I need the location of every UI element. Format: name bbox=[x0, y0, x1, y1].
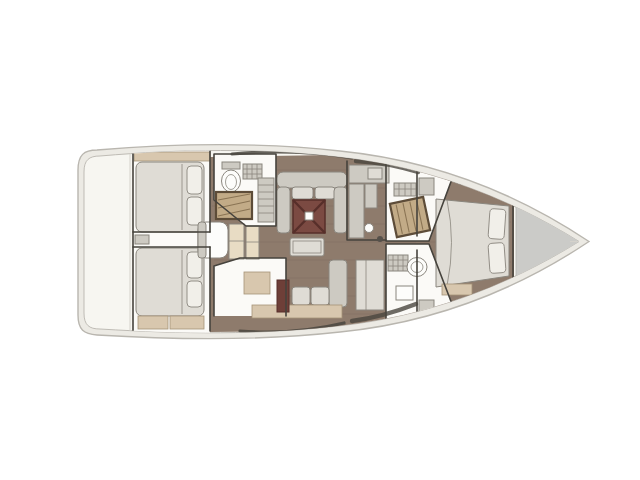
bench bbox=[138, 316, 168, 329]
toilet-icon bbox=[222, 170, 241, 192]
galley-cabinet bbox=[356, 260, 384, 310]
pillow bbox=[488, 242, 506, 273]
sofa-arm bbox=[277, 187, 290, 233]
corridor-locker bbox=[135, 235, 149, 244]
sofa-arm bbox=[334, 187, 347, 233]
pillow bbox=[187, 166, 202, 194]
pillow bbox=[488, 208, 506, 239]
bar-cabinet bbox=[277, 280, 289, 312]
sofa-cushion bbox=[315, 187, 335, 199]
toilet-cistern bbox=[222, 162, 240, 169]
galley-sink bbox=[365, 224, 374, 233]
companionway-steps bbox=[246, 226, 259, 259]
stove bbox=[368, 168, 382, 179]
aft-cabin-starboard bbox=[136, 248, 204, 329]
seat-back bbox=[198, 222, 206, 258]
nightstand bbox=[419, 178, 434, 195]
sofa-cushion bbox=[311, 287, 329, 305]
sink bbox=[243, 164, 262, 179]
cabinet bbox=[396, 286, 413, 300]
shelf bbox=[134, 152, 210, 161]
sofa-cushion bbox=[292, 287, 310, 305]
bench bbox=[170, 316, 204, 329]
yacht-floor-plan bbox=[0, 0, 640, 480]
floor-plan-canvas bbox=[0, 0, 640, 480]
mast-post bbox=[377, 236, 383, 242]
aft-cabin-port bbox=[134, 152, 210, 232]
companionway bbox=[198, 222, 259, 259]
galley-counter-side bbox=[349, 184, 364, 238]
companionway-steps bbox=[229, 224, 244, 259]
galley-counter-mid bbox=[365, 184, 377, 208]
sofa-back-starboard bbox=[329, 260, 347, 307]
starboard-bench bbox=[252, 305, 342, 318]
table-center bbox=[305, 212, 313, 220]
vestibule-cabinet bbox=[244, 272, 270, 294]
sofa-back-port bbox=[277, 172, 347, 188]
pillow bbox=[187, 197, 202, 225]
pillow bbox=[187, 281, 202, 307]
sofa-cushion bbox=[292, 187, 313, 199]
